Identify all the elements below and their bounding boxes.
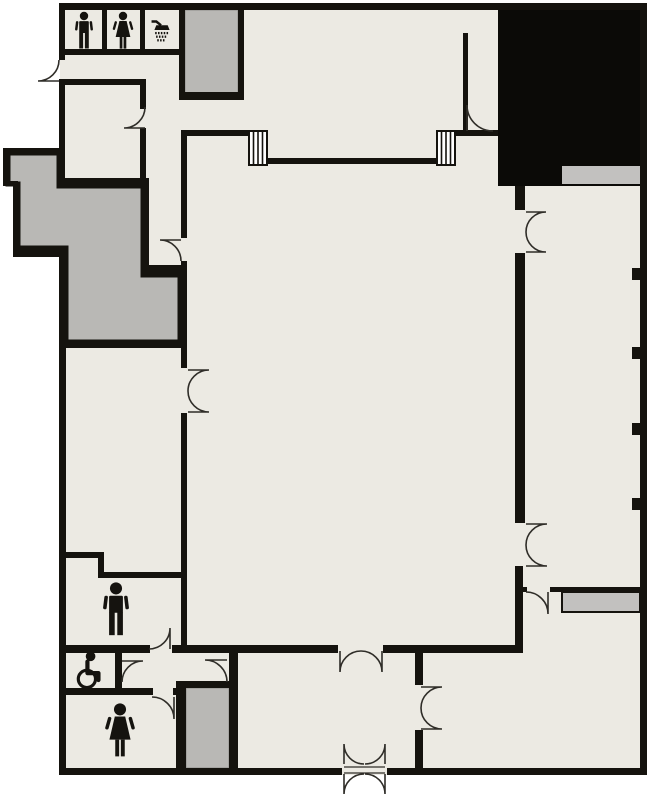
wall-segment bbox=[115, 652, 122, 688]
wall-segment bbox=[515, 186, 525, 210]
wall-segment bbox=[632, 498, 640, 510]
wall-segment bbox=[632, 268, 640, 280]
wall-segment bbox=[13, 181, 18, 257]
wall-segment bbox=[140, 85, 146, 109]
wall-segment bbox=[181, 130, 187, 238]
wall-segment bbox=[59, 178, 144, 184]
wall-segment bbox=[640, 3, 647, 775]
wall-segment bbox=[415, 730, 423, 775]
service-strip-top-right bbox=[562, 166, 640, 184]
wall-segment bbox=[103, 572, 183, 578]
wall-segment bbox=[632, 347, 640, 359]
wall-segment bbox=[179, 92, 244, 100]
wall-segment bbox=[632, 423, 640, 435]
wall-segment bbox=[13, 250, 66, 257]
wall-segment bbox=[60, 552, 104, 558]
wall-segment bbox=[60, 3, 647, 10]
wall-segment bbox=[59, 49, 184, 55]
wall-segment bbox=[143, 178, 149, 271]
wall-segment bbox=[415, 648, 423, 685]
wall-segment bbox=[140, 8, 145, 53]
partition-hatch-left bbox=[249, 131, 267, 165]
floor-plan-svg bbox=[0, 0, 660, 800]
wall-segment bbox=[383, 645, 523, 653]
wall-segment bbox=[265, 158, 440, 164]
wall-segment bbox=[102, 8, 107, 53]
wall-segment bbox=[59, 79, 146, 85]
wall-segment bbox=[59, 645, 150, 653]
elevator-block bbox=[186, 688, 229, 768]
wall-segment bbox=[176, 686, 186, 775]
wall-segment bbox=[143, 265, 187, 273]
wall-segment bbox=[387, 768, 647, 775]
floor-plan-canvas bbox=[0, 0, 660, 800]
wall-segment bbox=[179, 8, 185, 100]
wall-segment bbox=[3, 148, 60, 153]
wall-segment bbox=[181, 261, 187, 368]
wall-segment bbox=[182, 130, 250, 136]
partition-hatch-right bbox=[437, 131, 455, 165]
wall-segment bbox=[140, 128, 146, 184]
wall-segment bbox=[60, 768, 342, 775]
void-area bbox=[498, 3, 647, 186]
wall-segment bbox=[515, 566, 523, 647]
wall-segment bbox=[59, 688, 153, 695]
wall-segment bbox=[229, 648, 238, 775]
wall-segment bbox=[60, 342, 187, 348]
wall-segment bbox=[550, 587, 640, 592]
wall-segment bbox=[172, 645, 338, 653]
wall-segment bbox=[238, 8, 244, 100]
wall-segment bbox=[3, 148, 8, 186]
wall-segment bbox=[59, 82, 65, 186]
wall-segment bbox=[515, 253, 525, 523]
wall-segment bbox=[181, 413, 187, 647]
service-strip-mid-right bbox=[562, 592, 640, 612]
stair-block-top bbox=[185, 10, 238, 94]
wall-segment bbox=[59, 257, 66, 775]
